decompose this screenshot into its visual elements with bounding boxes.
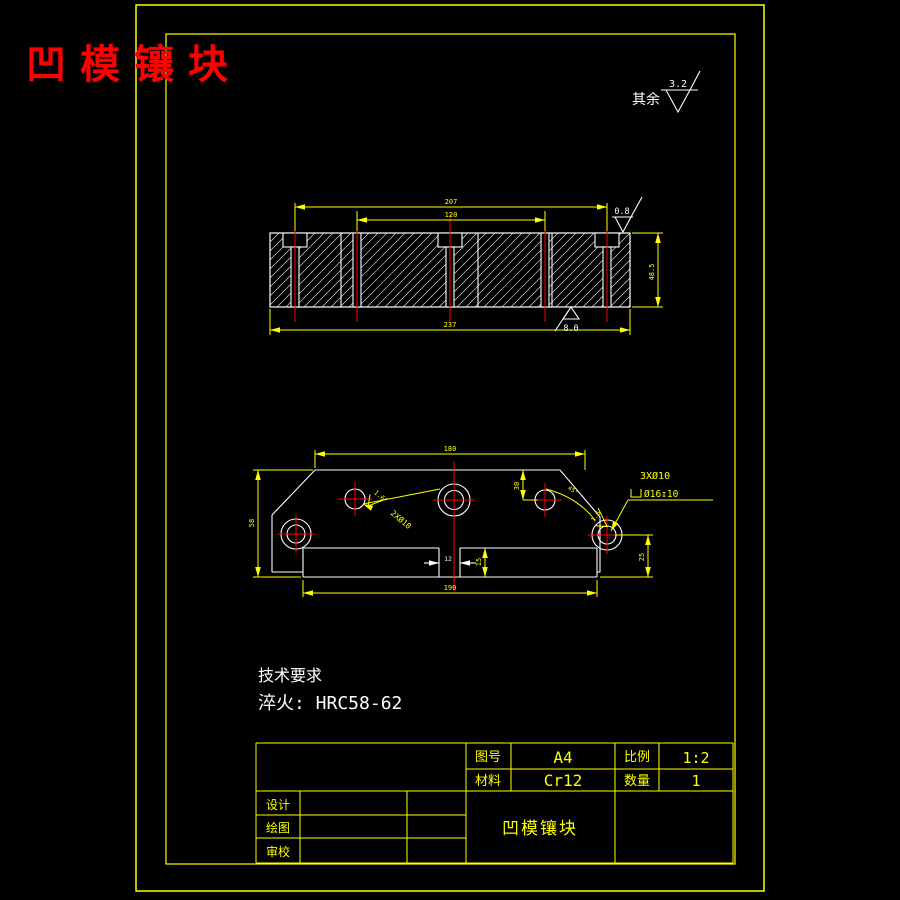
dim-height: 48.5 (648, 264, 656, 281)
hatch-line (502, 233, 576, 307)
general-roughness-value: 3.2 (669, 79, 687, 90)
qty-label: 数量 (624, 774, 650, 789)
dim-arrow (460, 560, 470, 566)
part-name: 凹模镶块 (502, 818, 578, 839)
dim-notch-depth: 15 (475, 558, 483, 566)
plan-outline (272, 470, 600, 577)
dim-arrow (575, 451, 585, 457)
dim-bottom-width: 190 (444, 584, 457, 592)
hatch-line (520, 233, 594, 307)
plan-holes (281, 484, 622, 550)
roughness-mark-08: 0.8 (612, 197, 642, 232)
hatch-line (313, 233, 387, 307)
hatch-line (610, 287, 630, 307)
dim-arrow (255, 470, 261, 480)
counterbore-icon (631, 489, 641, 497)
dim-arrow (597, 204, 607, 210)
dim-arrow (520, 470, 526, 480)
dim-arrow (482, 548, 488, 558)
dim-top-width: 180 (444, 445, 457, 453)
section-view: 207 120 237 48.5 0.8 (270, 197, 663, 335)
dim-arrow (482, 567, 488, 577)
dim-arrow (587, 590, 597, 596)
plan-centerlines (277, 461, 626, 591)
dim-overall-width: 237 (444, 321, 457, 329)
dim-arrow (520, 490, 526, 500)
dim-notch-width: 12 (444, 555, 452, 563)
tech-requirements: 技术要求 淬火: HRC58-62 (258, 666, 402, 714)
hatch-line (331, 233, 405, 307)
dim-arrow (655, 233, 661, 243)
dim-inner-span: 120 (445, 211, 458, 219)
callout-cb-detail: Ø16↧10 (644, 489, 679, 500)
dim-arrow (655, 297, 661, 307)
dim-arrow (535, 217, 545, 223)
title-block: 图号 A4 比例 1:2 材料 Cr12 数量 1 设计 绘图 审校 凹模镶块 (256, 743, 733, 863)
callout-pin-holes: 2XØ10 (389, 508, 414, 531)
hatch-line (574, 251, 630, 307)
hatch-line (367, 233, 441, 307)
tech-requirements-heading: 技术要求 (258, 666, 322, 685)
roughness-value: 8.0 (563, 324, 578, 334)
dim-right-offset: 25 (638, 553, 646, 561)
material-label: 材料 (475, 774, 501, 789)
drawing-no-value: A4 (553, 748, 572, 767)
general-roughness-prefix: 其余 (632, 91, 660, 108)
cad-drawing: 其余 3.2 (0, 0, 900, 900)
roughness-value: 0.8 (614, 207, 629, 217)
dim-arrow (303, 590, 313, 596)
hatch-line (270, 233, 279, 242)
hatch-line (457, 233, 531, 307)
check-label: 审校 (266, 844, 290, 859)
material-value: Cr12 (544, 771, 583, 790)
dim-arrow (429, 560, 439, 566)
plan-view: 180 58 30 25 190 15 (248, 445, 713, 597)
drawing-title: 凹模镶块 (26, 32, 242, 90)
scale-value: 1:2 (682, 749, 709, 767)
hatch-line (475, 233, 549, 307)
design-label: 设计 (266, 798, 290, 812)
callout-cb-holes: 3XØ10 (640, 470, 670, 482)
hatch-line (466, 233, 540, 307)
roughness-check-icon (661, 71, 700, 112)
dim-chamfer-angle: 45° (566, 485, 579, 497)
pin-hole-callout: 1.6 2XØ10 (363, 487, 440, 531)
roughness-value: 1.6 (372, 489, 386, 503)
dim-left-height: 58 (248, 519, 256, 527)
hatch-line (340, 233, 414, 307)
qty-value: 1 (691, 772, 700, 790)
cad-drawing-canvas: 凹模镶块 其余 3.2 (0, 0, 900, 900)
hatch-line (529, 233, 603, 307)
roughness-check-icon: 1.6 (364, 487, 388, 512)
dim-arrow (295, 204, 305, 210)
dim-arrow (315, 451, 325, 457)
tech-requirements-line1: 淬火: HRC58-62 (258, 693, 402, 714)
dim-hole-offset: 30 (513, 482, 521, 490)
dim-arrow (620, 327, 630, 333)
dim-arrow (645, 535, 651, 545)
dim-upper-span: 207 (445, 198, 458, 206)
drawing-no-label: 图号 (475, 750, 501, 765)
scale-label: 比例 (624, 750, 650, 765)
hatch-line (358, 233, 432, 307)
hatch-line (619, 296, 630, 307)
general-roughness-note: 其余 3.2 (632, 71, 700, 112)
dim-arrow (270, 327, 280, 333)
hatch-line (493, 233, 567, 307)
hatch-line (565, 242, 630, 307)
dim-arrow (357, 217, 367, 223)
draw-label: 绘图 (266, 820, 290, 835)
dim-arrow (645, 567, 651, 577)
dim-arrow (255, 567, 261, 577)
